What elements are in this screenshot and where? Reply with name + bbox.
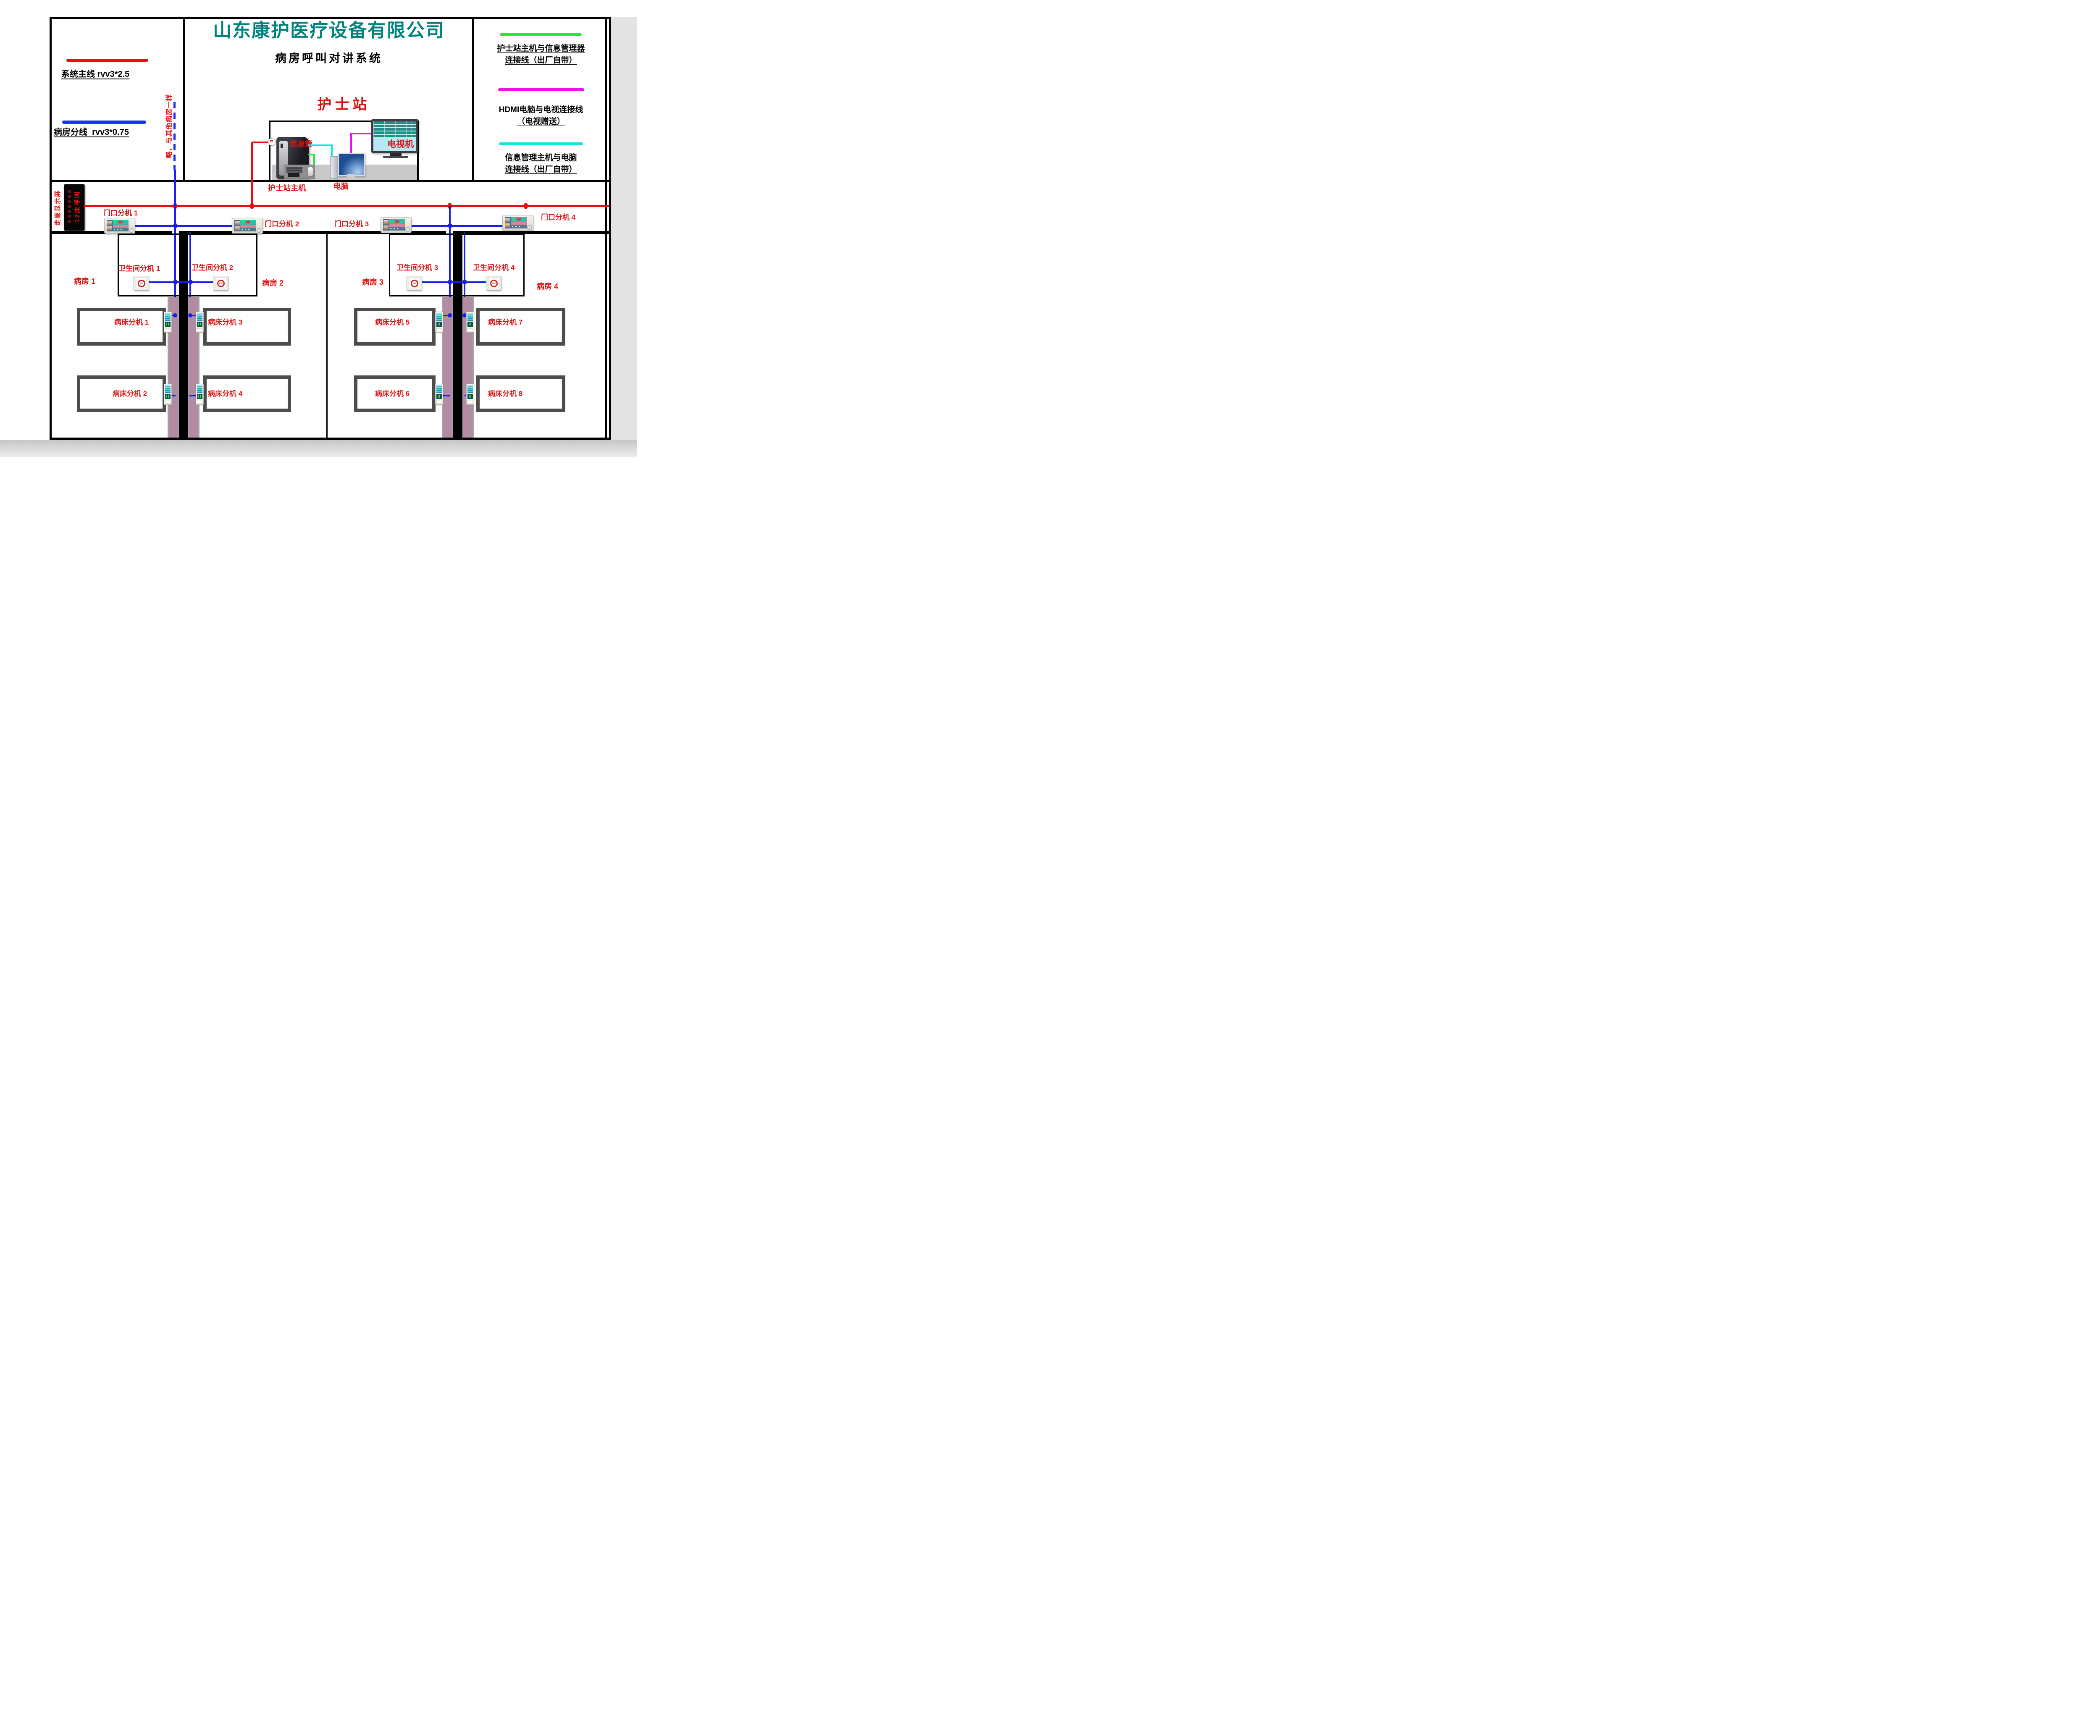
bed-outline-3 bbox=[203, 308, 291, 346]
border-right-inner bbox=[605, 17, 607, 438]
bed-unit-1-device bbox=[164, 312, 172, 333]
bathroom-branch-line-right bbox=[421, 281, 487, 283]
door-unit-2-device: 12 bbox=[232, 218, 263, 234]
bed-unit-5-device bbox=[435, 312, 443, 333]
door-branch-dot-right bbox=[448, 223, 452, 228]
tv-base bbox=[383, 156, 408, 158]
bed-unit-3-label: 病床分机 3 bbox=[208, 318, 242, 327]
nurse-station-title: 护士站 bbox=[269, 97, 419, 113]
border-left bbox=[50, 17, 52, 440]
bed-dot-1 bbox=[173, 313, 177, 317]
magenta-link-seg1 bbox=[350, 133, 373, 134]
border-bottom bbox=[50, 438, 611, 440]
legend-main-line-swatch bbox=[66, 59, 148, 62]
bed-unit-1-label: 病床分机 1 bbox=[114, 318, 149, 327]
bathroom-unit-2-device bbox=[213, 276, 228, 291]
bed-unit-6-device bbox=[435, 384, 443, 405]
ward-4-label: 病房 4 bbox=[537, 282, 558, 291]
bed-unit-8-device bbox=[466, 384, 474, 405]
bathroom-branch-line-left bbox=[148, 281, 214, 283]
bathroom-unit-1-device bbox=[134, 276, 149, 291]
bed-unit-7-label: 病床分机 7 bbox=[488, 318, 522, 327]
legend-cyan-label-line1: 信息管理主机与电脑 bbox=[476, 152, 606, 163]
page-bottom-shadow bbox=[0, 440, 637, 457]
legend-cyan-swatch bbox=[499, 142, 583, 145]
ward-2-label: 病房 2 bbox=[262, 279, 283, 288]
door-unit-3-device: 12 bbox=[381, 217, 412, 233]
computer-tower bbox=[330, 156, 338, 179]
legend-magenta-label-line2: （电视赠送） bbox=[476, 116, 606, 127]
computer-label: 电脑 bbox=[333, 182, 349, 191]
legend-main-line-label: 系统主线 rvv3*2.5 bbox=[61, 70, 129, 79]
bathroom-unit-2-label: 卫生间分机 2 bbox=[192, 264, 233, 272]
bathroom-unit-4-device bbox=[486, 276, 501, 291]
bed-unit-2-label: 病床分机 2 bbox=[113, 390, 147, 398]
door-unit-3-label: 门口分机 3 bbox=[334, 220, 369, 228]
door-unit-1-label: 门口分机 1 bbox=[103, 209, 138, 218]
branch-dashed-line bbox=[173, 102, 176, 170]
border-top bbox=[50, 17, 611, 19]
divider-left-legend bbox=[183, 17, 185, 181]
red-trunk-into-info-host bbox=[252, 142, 270, 143]
bathroom-unit-3-label: 卫生间分机 3 bbox=[396, 264, 438, 272]
info-manager-label: 信息管 理主机 bbox=[290, 123, 312, 192]
legend-cyan-label-line2: 连接线（出厂自带） bbox=[476, 164, 606, 175]
bed-outline-7 bbox=[476, 308, 565, 346]
bed-outline-1 bbox=[77, 308, 166, 346]
ward-divider-wall bbox=[326, 234, 328, 438]
legend-branch-line-label: 病房分线 rvv3*0.75 bbox=[54, 128, 129, 137]
divider-right-legend bbox=[472, 17, 474, 181]
central-wall-ward12 bbox=[179, 231, 188, 438]
border-right-outer bbox=[609, 17, 611, 440]
system-subtitle: 病房呼叫对讲系统 bbox=[186, 52, 472, 65]
bed-dot-3 bbox=[188, 313, 192, 317]
corridor-display-label: 走廊显示屏 bbox=[53, 181, 61, 235]
ward-1-label: 病房 1 bbox=[74, 277, 95, 286]
tv-device: 电视机 bbox=[371, 119, 418, 153]
tv-call-list bbox=[373, 121, 416, 138]
bed-unit-7-device bbox=[466, 312, 474, 333]
bed-unit-2-device bbox=[164, 384, 172, 405]
bed-unit-6-label: 病床分机 6 bbox=[375, 390, 409, 398]
bathroom-dot-3 bbox=[448, 280, 452, 284]
computer-stand bbox=[347, 174, 355, 178]
led-call-text: 12床呼叫 bbox=[73, 186, 81, 228]
legend-green-swatch bbox=[500, 33, 582, 36]
cyan-link-seg1 bbox=[308, 144, 333, 146]
bathroom-unit-4-label: 卫生间分机 4 bbox=[473, 264, 514, 272]
door-unit-4-device: 12 bbox=[502, 215, 533, 231]
corridor-strip-3 bbox=[442, 297, 453, 438]
bed-outline-5 bbox=[354, 308, 436, 346]
red-main-trunk-line bbox=[84, 205, 609, 207]
bathroom-dot-2 bbox=[188, 280, 193, 284]
trunk-junction-dot-4 bbox=[524, 203, 528, 209]
ward-intercom-diagram: 系统主线 rvv3*2.5 病房分线 rvv3*0.75 山东康护医疗设备有限公… bbox=[0, 0, 649, 461]
tv-label: 电视机 bbox=[387, 137, 414, 150]
bed-unit-4-label: 病床分机 4 bbox=[208, 390, 242, 398]
bathroom-dot-4 bbox=[462, 280, 467, 284]
bathroom-unit-1-label: 卫生间分机 1 bbox=[118, 265, 160, 273]
legend-magenta-swatch bbox=[498, 88, 584, 91]
trunk-connector-icon bbox=[268, 138, 276, 146]
bed-unit-5-label: 病床分机 5 bbox=[375, 318, 409, 327]
bed-dot-5 bbox=[448, 313, 452, 317]
legend-green-label-line1: 护士站主机与信息管理器 bbox=[476, 43, 606, 54]
bathroom-dot-1 bbox=[173, 280, 178, 284]
door-unit-1-device: 12 bbox=[104, 218, 135, 234]
company-title: 山东康护医疗设备有限公司 bbox=[186, 20, 472, 42]
door-unit-2-label: 门口分机 2 bbox=[265, 220, 299, 228]
door-unit-4-label: 门口分机 4 bbox=[541, 213, 575, 222]
red-trunk-riser bbox=[251, 142, 253, 205]
bed-unit-3-device bbox=[196, 312, 204, 333]
legend-branch-line-swatch bbox=[62, 121, 146, 124]
door-branch-line-left bbox=[134, 225, 232, 227]
bathroom-unit-3-device bbox=[407, 276, 422, 291]
legend-green-label-line2: 连接线（出厂自带） bbox=[476, 55, 606, 66]
page-right-shadow bbox=[611, 17, 637, 440]
legend-magenta-label-line1: HDMI电脑与电视连接线 bbox=[476, 104, 606, 115]
bed-unit-8-label: 病床分机 8 bbox=[488, 390, 522, 398]
door-branch-line-right bbox=[411, 225, 502, 227]
bed-elbow-6 bbox=[442, 395, 450, 396]
door-branch-dot-left bbox=[173, 223, 178, 228]
trunk-junction-dot-2 bbox=[250, 203, 254, 209]
ward-3-label: 病房 3 bbox=[362, 278, 383, 287]
nurse-station-host-label: 护士站主机 bbox=[268, 184, 306, 193]
nurse-station-host-device bbox=[284, 165, 315, 179]
computer-monitor bbox=[338, 153, 365, 176]
bed-unit-4-device bbox=[196, 384, 204, 405]
branch-note: 略，与其他病房一样 bbox=[164, 78, 173, 174]
central-wall-ward34 bbox=[453, 231, 462, 438]
led-secondary-column bbox=[68, 190, 71, 224]
